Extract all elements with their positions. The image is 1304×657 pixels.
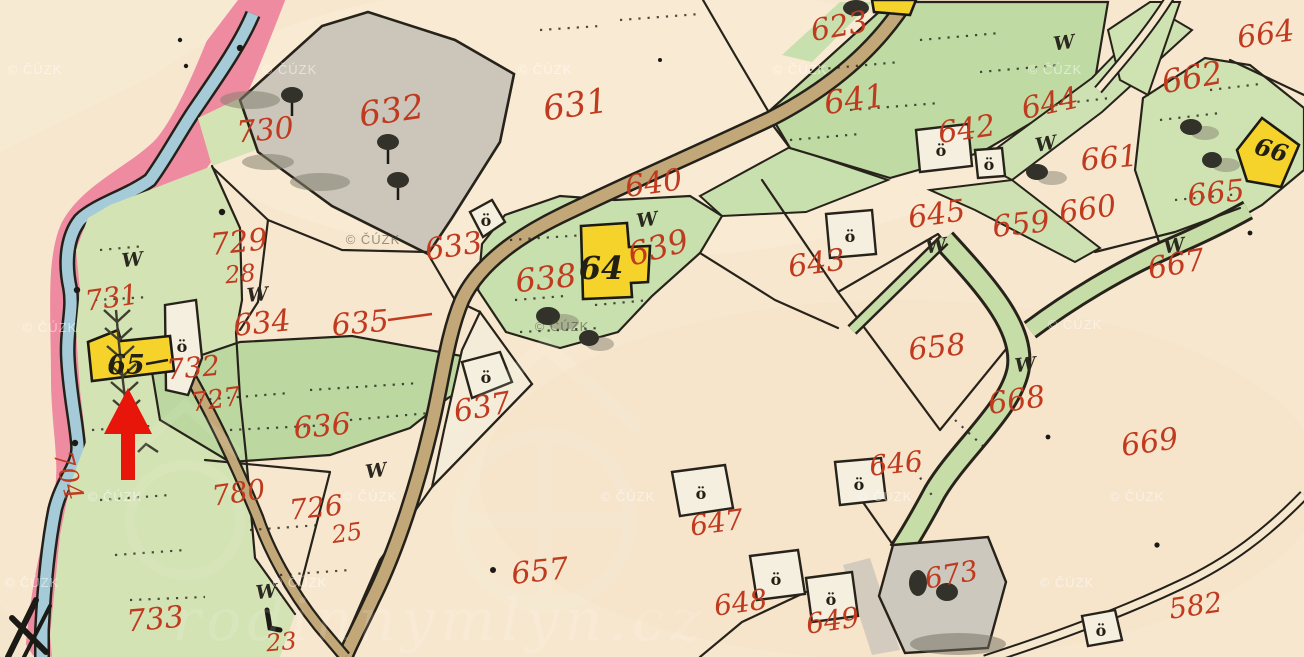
- svg-text:© ČÚZK: © ČÚZK: [518, 62, 573, 77]
- building-top-edge: [872, 0, 916, 15]
- parcel-label-25: 25: [329, 517, 364, 549]
- meadow-symbol: W: [246, 283, 271, 307]
- structure-symbol: ö: [936, 141, 947, 160]
- parcel-label-636: 636: [292, 407, 352, 447]
- parcel-label-638: 638: [513, 256, 578, 300]
- svg-text:© ČÚZK: © ČÚZK: [773, 62, 828, 77]
- parcel-label-23: 23: [264, 627, 298, 657]
- structure-symbol: ö: [771, 570, 782, 589]
- cadastral-map: rodinnymlyn.cz 730 632 631 623 641 664 6…: [0, 0, 1304, 657]
- map-canvas[interactable]: rodinnymlyn.cz 730 632 631 623 641 664 6…: [0, 0, 1304, 657]
- parcel-label-665: 665: [1186, 173, 1247, 214]
- svg-text:© ČÚZK: © ČÚZK: [535, 319, 590, 334]
- svg-text:© ČÚZK: © ČÚZK: [1028, 62, 1083, 77]
- svg-text:© ČÚZK: © ČÚZK: [601, 489, 656, 504]
- parcel-label-635: 635: [330, 304, 390, 344]
- parcel-label-659: 659: [991, 204, 1052, 245]
- svg-text:© ČÚZK: © ČÚZK: [263, 62, 318, 77]
- meadow-symbol: W: [1014, 353, 1039, 377]
- svg-text:© ČÚZK: © ČÚZK: [8, 62, 63, 77]
- structure-symbol: ö: [696, 484, 707, 503]
- structure-symbol: ö: [177, 337, 188, 356]
- svg-text:© ČÚZK: © ČÚZK: [343, 489, 398, 504]
- parcel-label-729: 729: [209, 222, 270, 263]
- svg-text:© ČÚZK: © ČÚZK: [346, 232, 401, 247]
- structure-symbol: ö: [984, 155, 995, 174]
- parcel-label-733: 733: [125, 600, 185, 640]
- svg-text:© ČÚZK: © ČÚZK: [5, 575, 60, 590]
- svg-text:© ČÚZK: © ČÚZK: [88, 489, 143, 504]
- site-watermark-text: rodinnymlyn.cz: [173, 586, 708, 654]
- structure-symbol: ö: [1096, 621, 1107, 640]
- structure-symbol: ö: [481, 368, 492, 387]
- parcel-label-730: 730: [235, 111, 295, 151]
- parcel-label-634: 634: [232, 303, 293, 344]
- building-label-65: 65: [107, 350, 145, 381]
- structure-symbol: ö: [826, 590, 837, 609]
- structure-symbol: ö: [845, 227, 856, 246]
- structure-symbol: ö: [481, 211, 492, 230]
- parcel-label-661: 661: [1079, 139, 1139, 179]
- svg-text:© ČÚZK: © ČÚZK: [1040, 575, 1095, 590]
- svg-text:© ČÚZK: © ČÚZK: [1048, 317, 1103, 332]
- parcel-label-658: 658: [907, 327, 968, 368]
- svg-text:© ČÚZK: © ČÚZK: [1110, 489, 1165, 504]
- svg-text:© ČÚZK: © ČÚZK: [23, 320, 78, 335]
- parcel-label-732: 732: [165, 349, 221, 387]
- parcel-label-646: 646: [868, 444, 925, 482]
- svg-text:© ČÚZK: © ČÚZK: [273, 575, 328, 590]
- parcel-label-657: 657: [510, 551, 572, 592]
- svg-text:© ČÚZK: © ČÚZK: [858, 489, 913, 504]
- building-label-64: 64: [579, 249, 624, 287]
- meadow-symbol: W: [121, 248, 146, 272]
